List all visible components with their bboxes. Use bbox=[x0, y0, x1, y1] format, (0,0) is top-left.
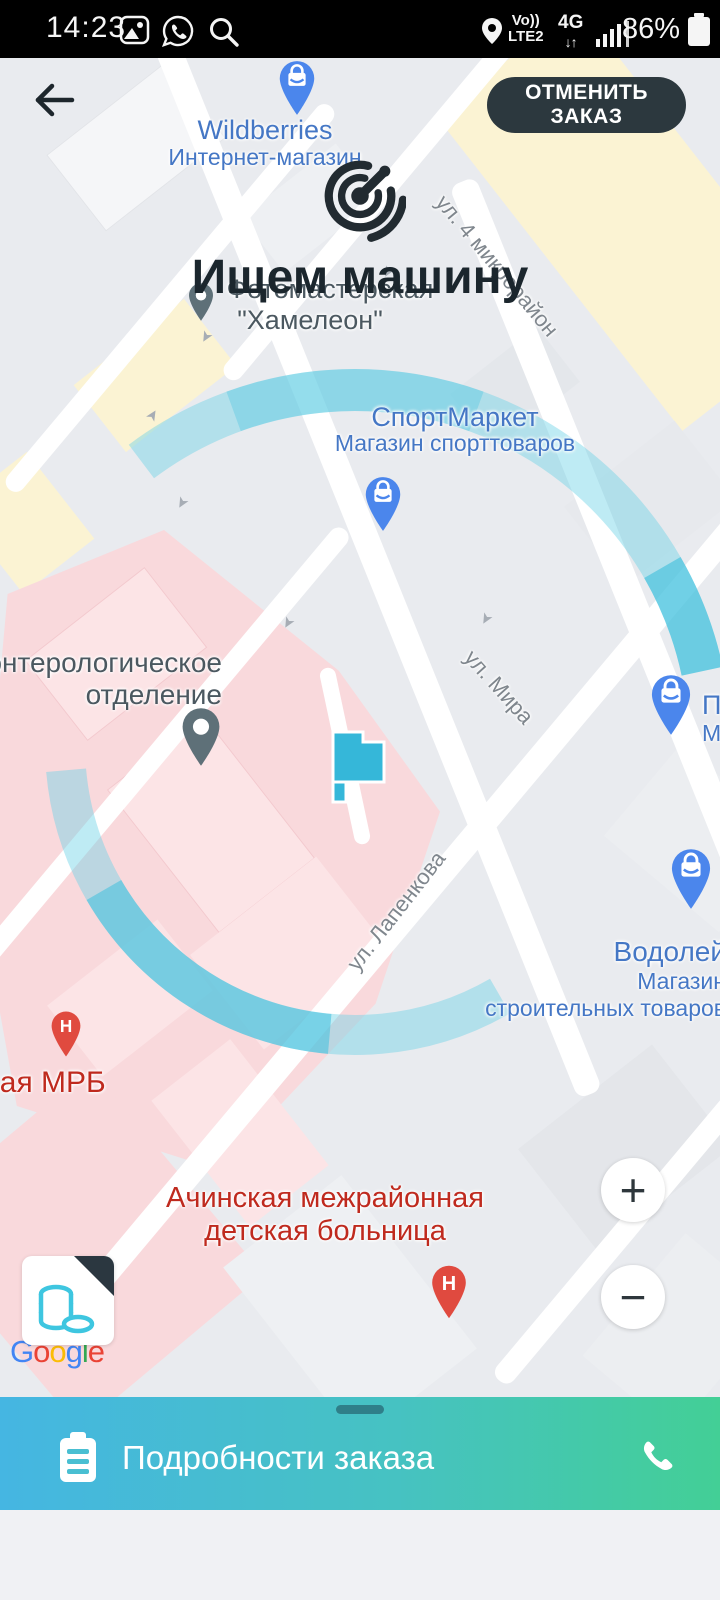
shop-pin-edge[interactable] bbox=[646, 674, 696, 736]
poi-label-wildberries: Wildberries bbox=[0, 115, 530, 146]
order-details-sheet[interactable]: Подробности заказа bbox=[0, 1397, 720, 1510]
location-status-icon bbox=[480, 17, 504, 45]
poi-label-edge-1: П bbox=[702, 690, 720, 721]
phone-screen: 14:23 Vo))LTE2 4G ↓↑ 86% bbox=[0, 0, 720, 1600]
clock: 14:23 bbox=[46, 11, 126, 45]
network-type-indicator: 4G ↓↑ bbox=[558, 12, 583, 50]
poi-label-children-hospital-1: Ачинская межрайонная bbox=[60, 1182, 590, 1215]
poi-label-sportmarket-category: Магазин спорттоваров bbox=[190, 430, 720, 457]
drag-handle[interactable] bbox=[336, 1405, 384, 1414]
oneway-arrow-icon: ➤ bbox=[475, 609, 497, 629]
poi-label-edge-2: М bbox=[702, 720, 720, 747]
hospital-pin-mrb[interactable]: H bbox=[48, 1005, 84, 1063]
battery-percent: 86% bbox=[622, 13, 680, 46]
payment-method-card[interactable] bbox=[22, 1256, 114, 1345]
zoom-out-button[interactable]: − bbox=[601, 1265, 665, 1329]
whatsapp-icon bbox=[160, 15, 196, 49]
poi-label-children-hospital-2: детская больница bbox=[60, 1215, 590, 1248]
gallery-icon bbox=[118, 15, 152, 45]
cancel-order-button[interactable]: ОТМЕНИТЬ ЗАКАЗ bbox=[487, 77, 686, 133]
oneway-arrow-icon: ➤ bbox=[171, 493, 193, 513]
zoom-in-button[interactable]: + bbox=[601, 1158, 665, 1222]
poi-label-gastro-1: энтерологическое bbox=[0, 647, 222, 679]
searching-status-title: Ищем машину bbox=[0, 250, 720, 305]
android-nav-bar bbox=[0, 1510, 720, 1600]
volte-indicator: Vo))LTE2 bbox=[508, 13, 544, 45]
search-icon bbox=[206, 15, 242, 49]
street-label: ул. Мира bbox=[459, 645, 539, 730]
poi-label-wildberries-category: Интернет-магазин bbox=[0, 144, 530, 171]
order-details-label: Подробности заказа bbox=[122, 1439, 638, 1477]
clipboard-icon bbox=[58, 1432, 98, 1484]
poi-label-mrb: кая МРБ bbox=[0, 1066, 106, 1100]
poi-label-vodoley-category-2: строительных товаров bbox=[430, 995, 720, 1022]
generic-pin-gastro[interactable] bbox=[178, 706, 224, 768]
poi-label-vodoley-category-1: Магазин bbox=[430, 968, 720, 995]
hospital-pin-children[interactable]: H bbox=[428, 1260, 470, 1324]
svg-text:H: H bbox=[442, 1273, 456, 1295]
call-driver-phone-icon[interactable] bbox=[638, 1437, 680, 1479]
battery-icon bbox=[686, 13, 712, 47]
poi-label-photostudio-2: "Хамелеон" bbox=[0, 305, 620, 336]
coins-icon bbox=[34, 1282, 98, 1338]
shop-pin-wildberries[interactable] bbox=[275, 60, 319, 116]
status-bar: 14:23 Vo))LTE2 4G ↓↑ 86% bbox=[0, 0, 720, 58]
destination-flag-marker[interactable] bbox=[326, 726, 392, 806]
back-button[interactable] bbox=[30, 76, 78, 124]
shop-pin-sportmarket[interactable] bbox=[361, 476, 405, 532]
poi-label-sportmarket: СпортМаркет bbox=[190, 402, 720, 433]
shop-pin-vodoley[interactable] bbox=[666, 848, 716, 910]
svg-text:H: H bbox=[60, 1017, 72, 1036]
poi-label-vodoley: Водолей bbox=[430, 936, 720, 968]
